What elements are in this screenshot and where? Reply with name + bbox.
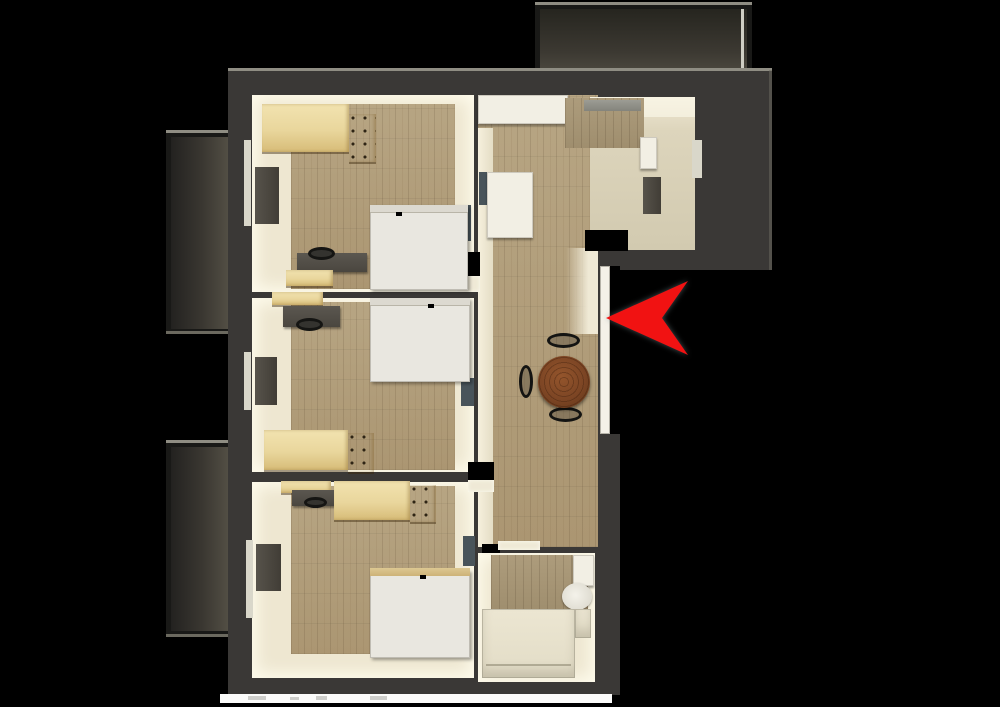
wardrobe-bed1 [262, 104, 349, 152]
wardrobe-bedroom3-end [410, 485, 436, 522]
threshold-bathroom [498, 541, 540, 550]
top-wall-edge-highlight [228, 68, 772, 71]
bed2-fixture-dot [428, 304, 434, 308]
wardrobe-bedroom2 [264, 430, 348, 470]
floorplan-canvas [0, 0, 1000, 707]
balcony-ul-top-edge [166, 130, 230, 133]
chair-bedroom3 [304, 497, 327, 508]
dining-chair-bottom [549, 407, 582, 422]
caption-mark [370, 696, 387, 700]
shower-tray-step [575, 609, 591, 638]
balcony-lower-left [166, 442, 233, 636]
pine-box-bedroom1 [286, 270, 333, 286]
bed-bedroom3 [370, 570, 470, 658]
balcony-upper-left [166, 132, 233, 334]
fridge-cabinet [487, 172, 533, 238]
cooker-hood-vent [584, 100, 641, 111]
closed-door-bedroom2 [461, 378, 474, 406]
balcony-ll-top-edge [166, 440, 230, 443]
entry-wall-stub [585, 230, 628, 251]
bed1-headboard [370, 205, 468, 213]
window-bedroom2 [244, 352, 251, 410]
balcony-ll-bottom-edge [166, 634, 233, 637]
window-bedroom3 [246, 540, 253, 618]
chair-bedroom2 [296, 318, 323, 331]
bed-bedroom2 [370, 298, 470, 382]
threshold-bedroom3 [468, 480, 494, 492]
wall-desk-bedroom2 [255, 357, 277, 405]
wall-desk-bedroom3 [256, 544, 281, 591]
doorway-bedroom3 [468, 462, 494, 482]
entrance-arrow-icon [604, 278, 690, 358]
hall-door-sill [566, 248, 598, 334]
balcony-ul-bottom-edge [166, 331, 233, 334]
caption-mark [248, 696, 266, 700]
top-balcony-edge-highlight [535, 2, 752, 5]
bed1-fixture-dot [396, 212, 402, 216]
wardrobe-bedroom2-end [348, 433, 374, 472]
closed-door-bedroom3 [463, 536, 475, 566]
right-wing-edge-highlight [769, 70, 772, 270]
counter-right [640, 137, 657, 169]
bed3-fixture-dot [420, 575, 426, 579]
dining-chair-top [547, 333, 580, 348]
kitchen-counter [478, 95, 568, 124]
shower-tray [482, 609, 575, 678]
wardrobe-bed1-end [349, 114, 376, 162]
chair-bedroom1 [308, 247, 335, 260]
wardrobe-bedroom3 [334, 481, 410, 520]
caption-strip [220, 694, 612, 703]
bed-bedroom1 [370, 205, 468, 290]
shelf-bedroom2 [272, 292, 323, 305]
entry-dark-wall-panel [643, 177, 661, 214]
wall-desk-bedroom1 [255, 167, 279, 224]
window-bedroom1 [244, 140, 251, 226]
dining-table [538, 356, 590, 408]
caption-mark [316, 696, 327, 700]
bed2-headboard [370, 298, 470, 306]
caption-mark [290, 697, 299, 700]
entrance-arrow-shape [606, 281, 688, 355]
shower-seam [486, 664, 571, 666]
cistern [573, 555, 594, 586]
toilet [562, 583, 592, 610]
entry-wall-niche [692, 140, 702, 178]
dining-chair-left [519, 365, 533, 398]
